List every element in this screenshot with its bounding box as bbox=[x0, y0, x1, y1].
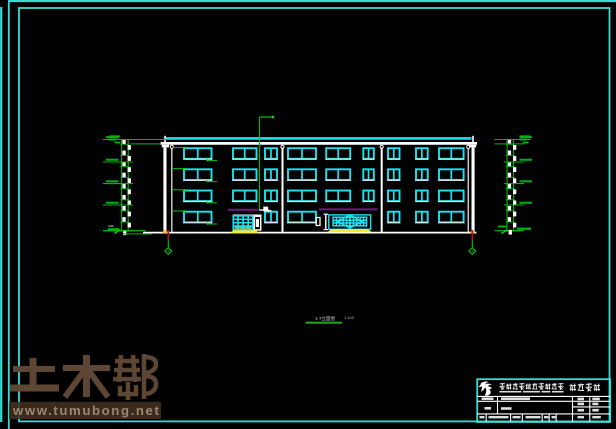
svg-text:1-7立面图: 1-7立面图 bbox=[315, 315, 336, 322]
svg-text:www.tumubong.net: www.tumubong.net bbox=[12, 403, 160, 418]
svg-text:1:100: 1:100 bbox=[344, 315, 355, 320]
